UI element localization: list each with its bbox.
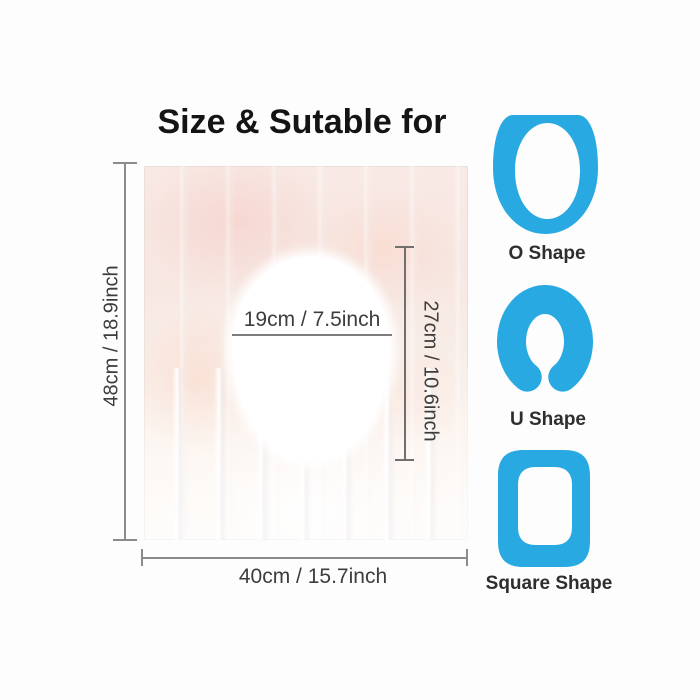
width-dimension-cap-right	[466, 549, 468, 566]
width-dimension-cap-left	[141, 549, 143, 566]
hole-height-dimension-cap-top	[395, 246, 414, 248]
hole-height-dimension-label: 27cm / 10.6inch	[419, 300, 442, 441]
hole-height-dimension-line	[404, 247, 406, 460]
height-dimension-cap-top	[113, 162, 137, 164]
width-dimension-label: 40cm / 15.7inch	[239, 565, 387, 589]
height-dimension-label: 48cm / 18.9inch	[101, 265, 124, 406]
u-shape-label: U Shape	[510, 409, 586, 431]
page-title: Size & Sutable for	[157, 103, 446, 142]
height-dimension-cap-bottom	[113, 539, 137, 541]
o-shape-icon	[493, 113, 598, 237]
width-dimension-line	[142, 557, 468, 559]
square-shape-label: Square Shape	[486, 573, 613, 595]
height-dimension-line	[124, 163, 126, 541]
hole-width-dimension-line	[232, 334, 392, 336]
hole-height-dimension-cap-bottom	[395, 459, 414, 461]
square-shape-icon	[498, 450, 590, 567]
o-shape-label: O Shape	[508, 243, 585, 265]
u-shape-icon	[497, 285, 593, 399]
hole-width-dimension-label: 19cm / 7.5inch	[244, 308, 381, 332]
